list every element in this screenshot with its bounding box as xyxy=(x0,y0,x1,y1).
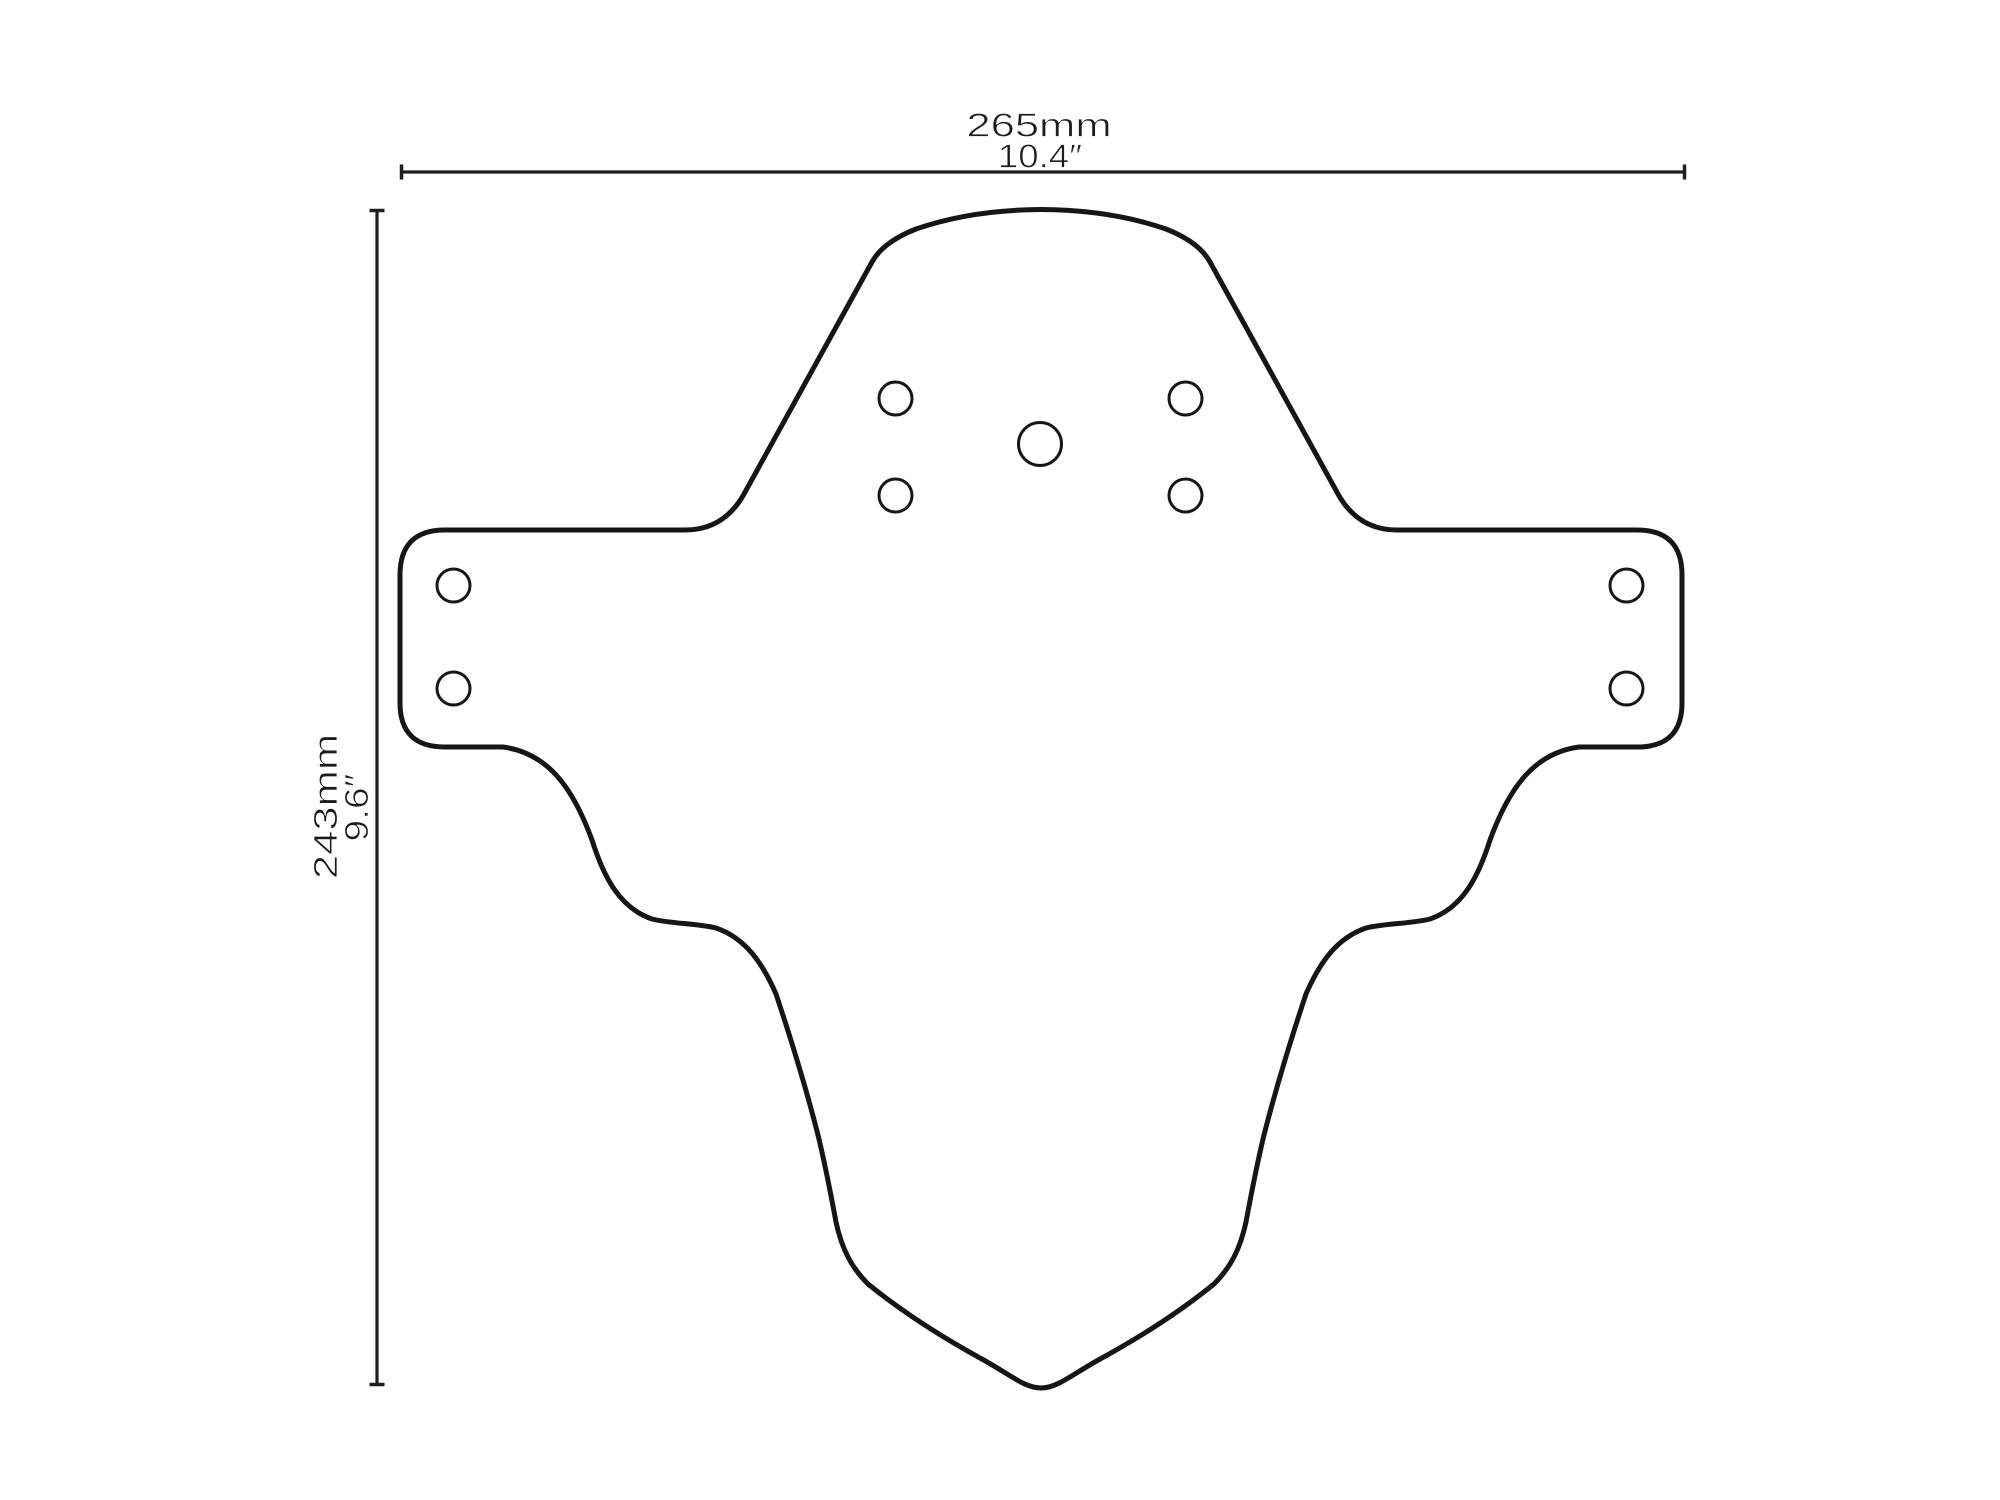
svg-text:10.4″: 10.4″ xyxy=(998,138,1082,175)
svg-text:9.6″: 9.6″ xyxy=(338,773,375,841)
